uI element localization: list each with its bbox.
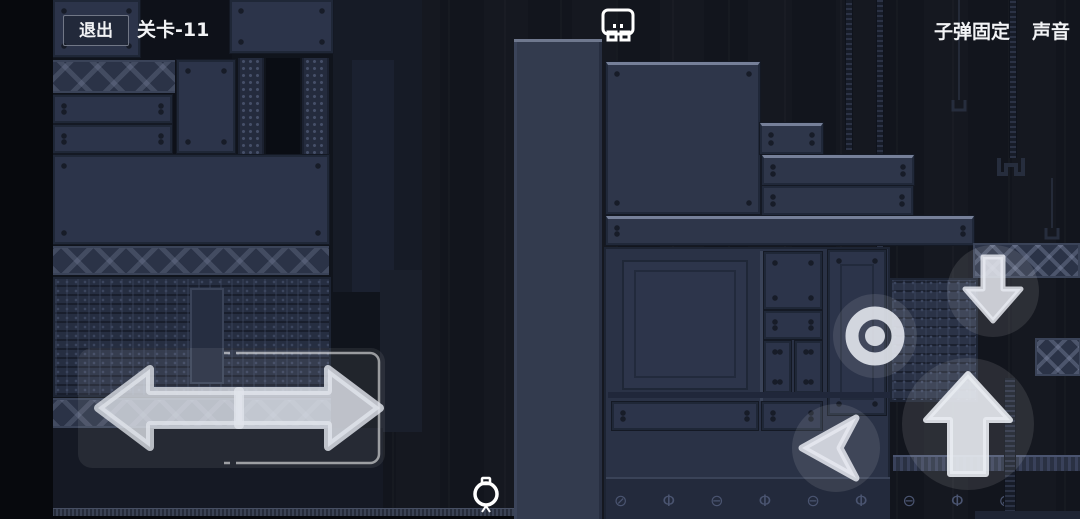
exit-button[interactable]: 退出 (63, 15, 129, 46)
body-tile (795, 341, 822, 393)
riveted-strip (302, 58, 329, 155)
body-tile (764, 252, 822, 309)
hanging-wire (1051, 178, 1053, 228)
dark-slab (352, 60, 394, 292)
wall-tile (177, 60, 235, 153)
bullet-fixed-toggle[interactable]: 子弹固定 (934, 17, 1010, 44)
inset-panel (622, 260, 748, 390)
sound-toggle[interactable]: 声音 (1032, 17, 1070, 44)
wall-tile (53, 125, 172, 153)
large-wall-panel (53, 155, 329, 244)
tower-column (514, 39, 602, 519)
right-arrow-icon (238, 369, 380, 447)
wire-hook-icon (950, 98, 968, 116)
body-divider (760, 251, 763, 401)
crouch-button[interactable] (947, 245, 1039, 337)
inset-panel-outline (634, 270, 736, 378)
hud-right-group: 子弹固定 声音 (880, 17, 1070, 44)
left-arrow-icon (98, 369, 240, 447)
stair-band (606, 216, 974, 245)
black-gap (266, 58, 300, 155)
x-brace-band (53, 246, 329, 275)
stair-block (606, 62, 760, 214)
body-tile (764, 341, 791, 393)
jump-button[interactable] (902, 358, 1034, 490)
bottom-right-platform (975, 511, 1080, 519)
move-right-button[interactable] (234, 363, 386, 453)
left-black-edge (0, 0, 53, 519)
screw-bolt-row: ⊘ Φ ⊖ Φ ⊖ Φ ⊖ Φ ⊘ (614, 491, 1027, 510)
stair-step (762, 186, 913, 215)
wire-hook-icon (1043, 226, 1061, 244)
body-tile (764, 311, 822, 339)
x-crate (1035, 338, 1080, 376)
move-left-button[interactable] (92, 363, 244, 453)
body-tile (612, 402, 758, 430)
level-label: 关卡-11 (137, 15, 209, 46)
claw-hook-icon (996, 156, 1026, 182)
riveted-strip (238, 58, 264, 155)
hanging-spring (845, 0, 853, 150)
up-arrow-icon (902, 358, 1034, 490)
player-robot-sprite (599, 7, 639, 45)
left-notch-arrow-icon (792, 404, 880, 492)
wall-tile (53, 95, 172, 123)
dash-button[interactable] (792, 404, 880, 492)
body-hdivider (608, 392, 890, 398)
dark-slab (380, 270, 422, 432)
down-arrow-icon (947, 245, 1039, 337)
game-screen: ⊘ Φ ⊖ Φ ⊖ Φ ⊖ Φ ⊘ 退出 关卡-11 子弹固定 声音 (0, 0, 1080, 519)
hanging-wire (958, 0, 960, 100)
wall-tile (230, 0, 333, 53)
stair-step (760, 123, 823, 154)
stair-step (762, 155, 914, 185)
orb-character-sprite (470, 474, 502, 516)
x-brace-band (53, 60, 175, 93)
